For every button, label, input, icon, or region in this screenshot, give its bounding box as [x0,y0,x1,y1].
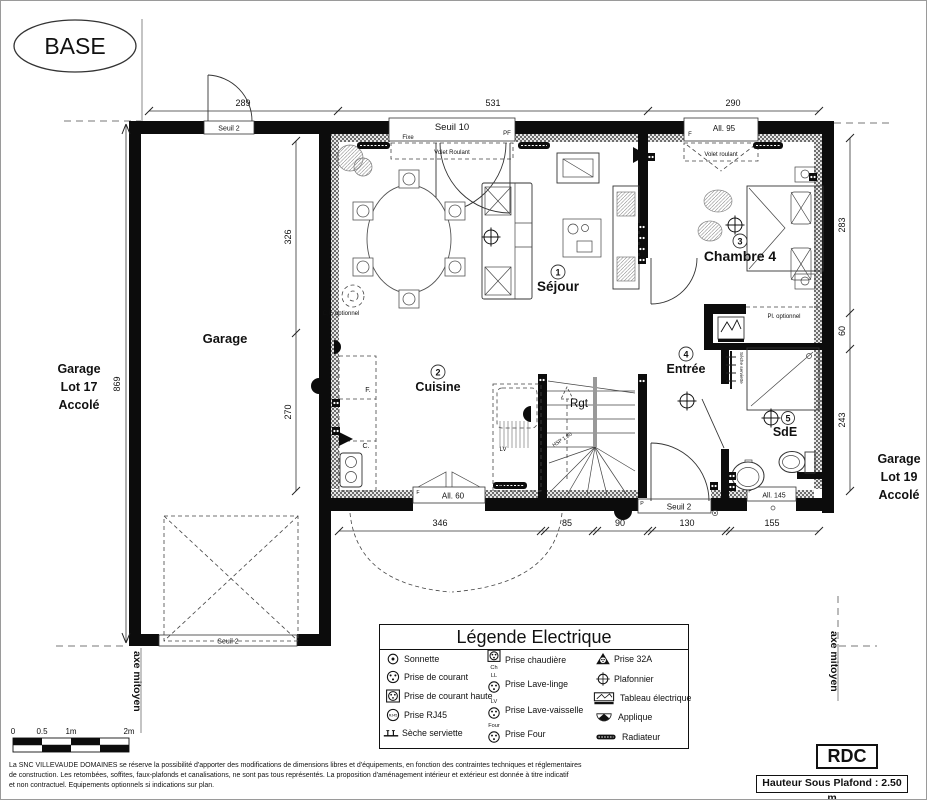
dim-right-60: 60 [837,326,847,336]
dim-bottom-130: 130 [679,518,694,528]
chambre-window-f-label: F [688,132,692,138]
room-num-chambre: 3 [737,237,742,247]
stair-rail [593,377,597,447]
prise-courant-haute-icon [385,688,401,704]
prise-32a-icon [339,432,353,446]
disclaimer-line-1: La SNC VILLEVAUDE DOMAINES se réserve la… [9,761,757,771]
legend-title: Légende Electrique [380,625,688,650]
prise-four-icon [486,729,502,745]
tableau-electrique-icon [718,317,744,342]
lot17-line1: Garage [57,362,100,376]
dim-top-289: 289 [235,98,250,108]
sonnette-icon [712,510,717,515]
axe-mitoyen-right: axe mitoyen [828,631,840,692]
legend-item-prise-chaudiere: Ch Prise chaudière [486,649,566,671]
stair-hsp-label: HSP 1.80 [552,432,574,449]
sonnette-icon [385,651,401,667]
base-bubble: BASE [14,20,136,72]
dim-right-283: 283 [837,217,847,232]
legend-item-prise-haute: Prise de courant haute [385,688,493,704]
legend-label: Applique [618,712,652,722]
legend-item-plafonnier: Plafonnier [595,671,654,687]
dim-right-243: 243 [837,412,847,427]
legend-label: Prise de courant [404,672,468,682]
pl-optionnel-label: Pl. optionnel [767,314,800,320]
shower [747,348,819,410]
prise-icon [638,223,646,231]
svg-text:RJ45: RJ45 [389,714,398,718]
legend-item-radiateur: Radiateur [593,729,660,745]
plafonnier-icon [595,671,611,687]
level-label: RDC [828,746,867,766]
legend-label: Sonnette [404,654,439,664]
prise-courant-icon [385,669,401,685]
seche-serviette-label: Sèche serviette [739,352,744,384]
disclaimer-line-3: et non contractuel. Equipements optionne… [9,781,757,791]
legend-item-seche-serviette: Sèche serviette [383,725,463,741]
armchair [557,153,599,183]
base-label: BASE [44,33,105,59]
dim-bottom-90: 90 [615,518,625,528]
sejour-window-fixe-label: Fixe [402,135,414,141]
prise-icon [728,472,736,480]
sde-window-label: All. 145 [762,493,785,500]
scale-tick-05: 0.5 [36,727,48,736]
applique-icon [523,406,531,422]
scale-tick-2m: 2m [123,727,134,736]
floorplan-page: BASE [0,0,927,800]
legend-item-applique: Applique [593,709,652,725]
sofa [482,183,532,299]
lot17-line2: Lot 17 [61,380,98,394]
dim-left-869: 869 [112,376,122,391]
dim-top-290: 290 [725,98,740,108]
room-label-rgt: Rgt [570,398,589,410]
dim-top-531: 531 [485,98,500,108]
dim-bottom-85: 85 [562,518,572,528]
legend-item-prise-lave-vaisselle: LV Prise Lave-vaisselle [486,699,583,721]
prise-icon [638,234,646,242]
seche-serviette-icon [383,725,399,741]
prise-icon [647,153,655,161]
scale-bar: 0 0.5 1m 2m [11,727,135,752]
prise-icon [332,427,340,435]
kitchen-ll-label: LL [500,484,507,490]
prise-32a-icon [595,651,611,667]
scale-tick-0: 0 [11,727,16,736]
legend-label: Radiateur [622,732,660,742]
legend-item-rj45: RJ45 Prise RJ45 [385,707,447,723]
lot17-line3: Accolé [59,398,100,412]
room-num-cuisine: 2 [435,368,440,378]
sink [732,460,764,490]
cf-optionnel-mark [342,285,364,307]
legend-label: Prise Lave-vaisselle [505,705,583,715]
level-label-box: RDC [816,744,878,769]
prise-icon [809,173,817,181]
prise-lave-vaisselle-icon [486,705,502,721]
room-label-chambre: Chambre 4 [704,248,777,264]
legend-item-prise-lave-linge: LL Prise Lave-linge [486,673,568,695]
cuisine-window-label: All. 60 [442,492,465,501]
dim-bottom-346: 346 [432,518,447,528]
doors-windows: Seuil 2 Seuil 10 Fixe PF Volet Roulant A… [159,75,796,646]
legend-label: Prise chaudière [505,655,566,665]
legend-item-sonnette: Sonnette [385,651,439,667]
dim-bottom-155: 155 [764,518,779,528]
furniture [337,145,823,491]
legend-label: Prise Lave-linge [505,679,568,689]
room-label-garage: Garage [203,331,248,346]
room-num-sde: 5 [785,414,790,424]
dining-table [367,185,451,293]
plafonnier-icon [482,228,501,247]
sejour-window-pf-label: PF [503,131,511,137]
legend-item-prise-four: Four Prise Four [486,723,546,745]
lot19-line3: Accolé [879,488,920,502]
plafonnier-icon [678,392,697,411]
cf-optionnel-label: C,F, optionnel [323,311,360,317]
legend-item-prise-courant: Prise de courant [385,669,468,685]
lot19-line2: Lot 19 [881,470,918,484]
entree-p-label: P [640,501,644,507]
garage-top-threshold-label: Seuil 2 [218,126,240,133]
prise-icon [332,399,340,407]
room-num-entree: 4 [683,350,688,360]
plant [337,145,372,176]
radiateur-icon [593,729,619,745]
kitchen-c-label: C. [363,443,370,450]
prise-icon [638,245,646,253]
bed [698,167,823,289]
legend-label: Plafonnier [614,674,654,684]
kitchen-f-label: F. [365,387,371,394]
chambre-window-label: All. 95 [713,124,736,133]
sejour-window-label: Seuil 10 [435,122,469,133]
stairs [547,377,635,495]
prise-icon [538,376,546,384]
ceiling-height-box: Hauteur Sous Plafond : 2.50 m [756,775,908,793]
legend-label: Prise RJ45 [404,710,447,720]
applique-icon [593,709,615,725]
prise-rj45-icon: RJ45 [385,707,401,723]
legend-label: Sèche serviette [402,728,463,738]
legend-label: Prise 32A [614,654,652,664]
kitchen-lv-label: LV [500,447,507,453]
cuisine-window-f-label: F [416,490,419,496]
chambre-shutter-label: Volet roulant [704,152,738,158]
tableau-electrique-icon [591,690,617,706]
prise-lave-linge-icon [486,679,502,695]
room-label-cuisine: Cuisine [415,380,460,394]
entree-threshold-label: Seuil 2 [667,503,692,512]
room-label-entree: Entrée [667,362,706,376]
prise-chaudiere-icon [486,649,502,665]
garage-bottom-threshold-label: Seuil 2 [217,639,239,646]
axe-mitoyen-left: axe mitoyen [131,651,143,712]
disclaimer: La SNC VILLEVAUDE DOMAINES se réserve la… [9,761,757,791]
legend-item-prise-32a: Prise 32A [595,651,652,667]
room-num-sejour: 1 [555,268,560,278]
legend-label: Prise Four [505,729,546,739]
sejour-shutter-label: Volet Roulant [434,150,470,156]
legend-label: Prise de courant haute [404,691,493,701]
prise-icon [728,483,736,491]
applique-icon [311,378,319,394]
disclaimer-line-2: de construction. Les retombées, soffites… [9,771,757,781]
room-label-sejour: Séjour [537,279,580,294]
dim-left-326: 326 [283,229,293,244]
applique-icon [334,340,341,354]
prise-icon [710,482,718,490]
legend-tag: Ch [490,665,497,671]
toilet [779,452,815,474]
prise-icon [638,256,646,264]
legend-item-tableau: Tableau électrique [591,690,691,706]
legend-label: Tableau électrique [620,693,691,703]
room-label-sde: SdE [773,425,797,439]
coffee-table [563,219,601,257]
scale-tick-1m: 1m [65,727,76,736]
lot19-line1: Garage [877,452,920,466]
plafonnier-icon [726,216,745,235]
prise-icon [638,377,646,385]
dim-left-270: 270 [283,404,293,419]
